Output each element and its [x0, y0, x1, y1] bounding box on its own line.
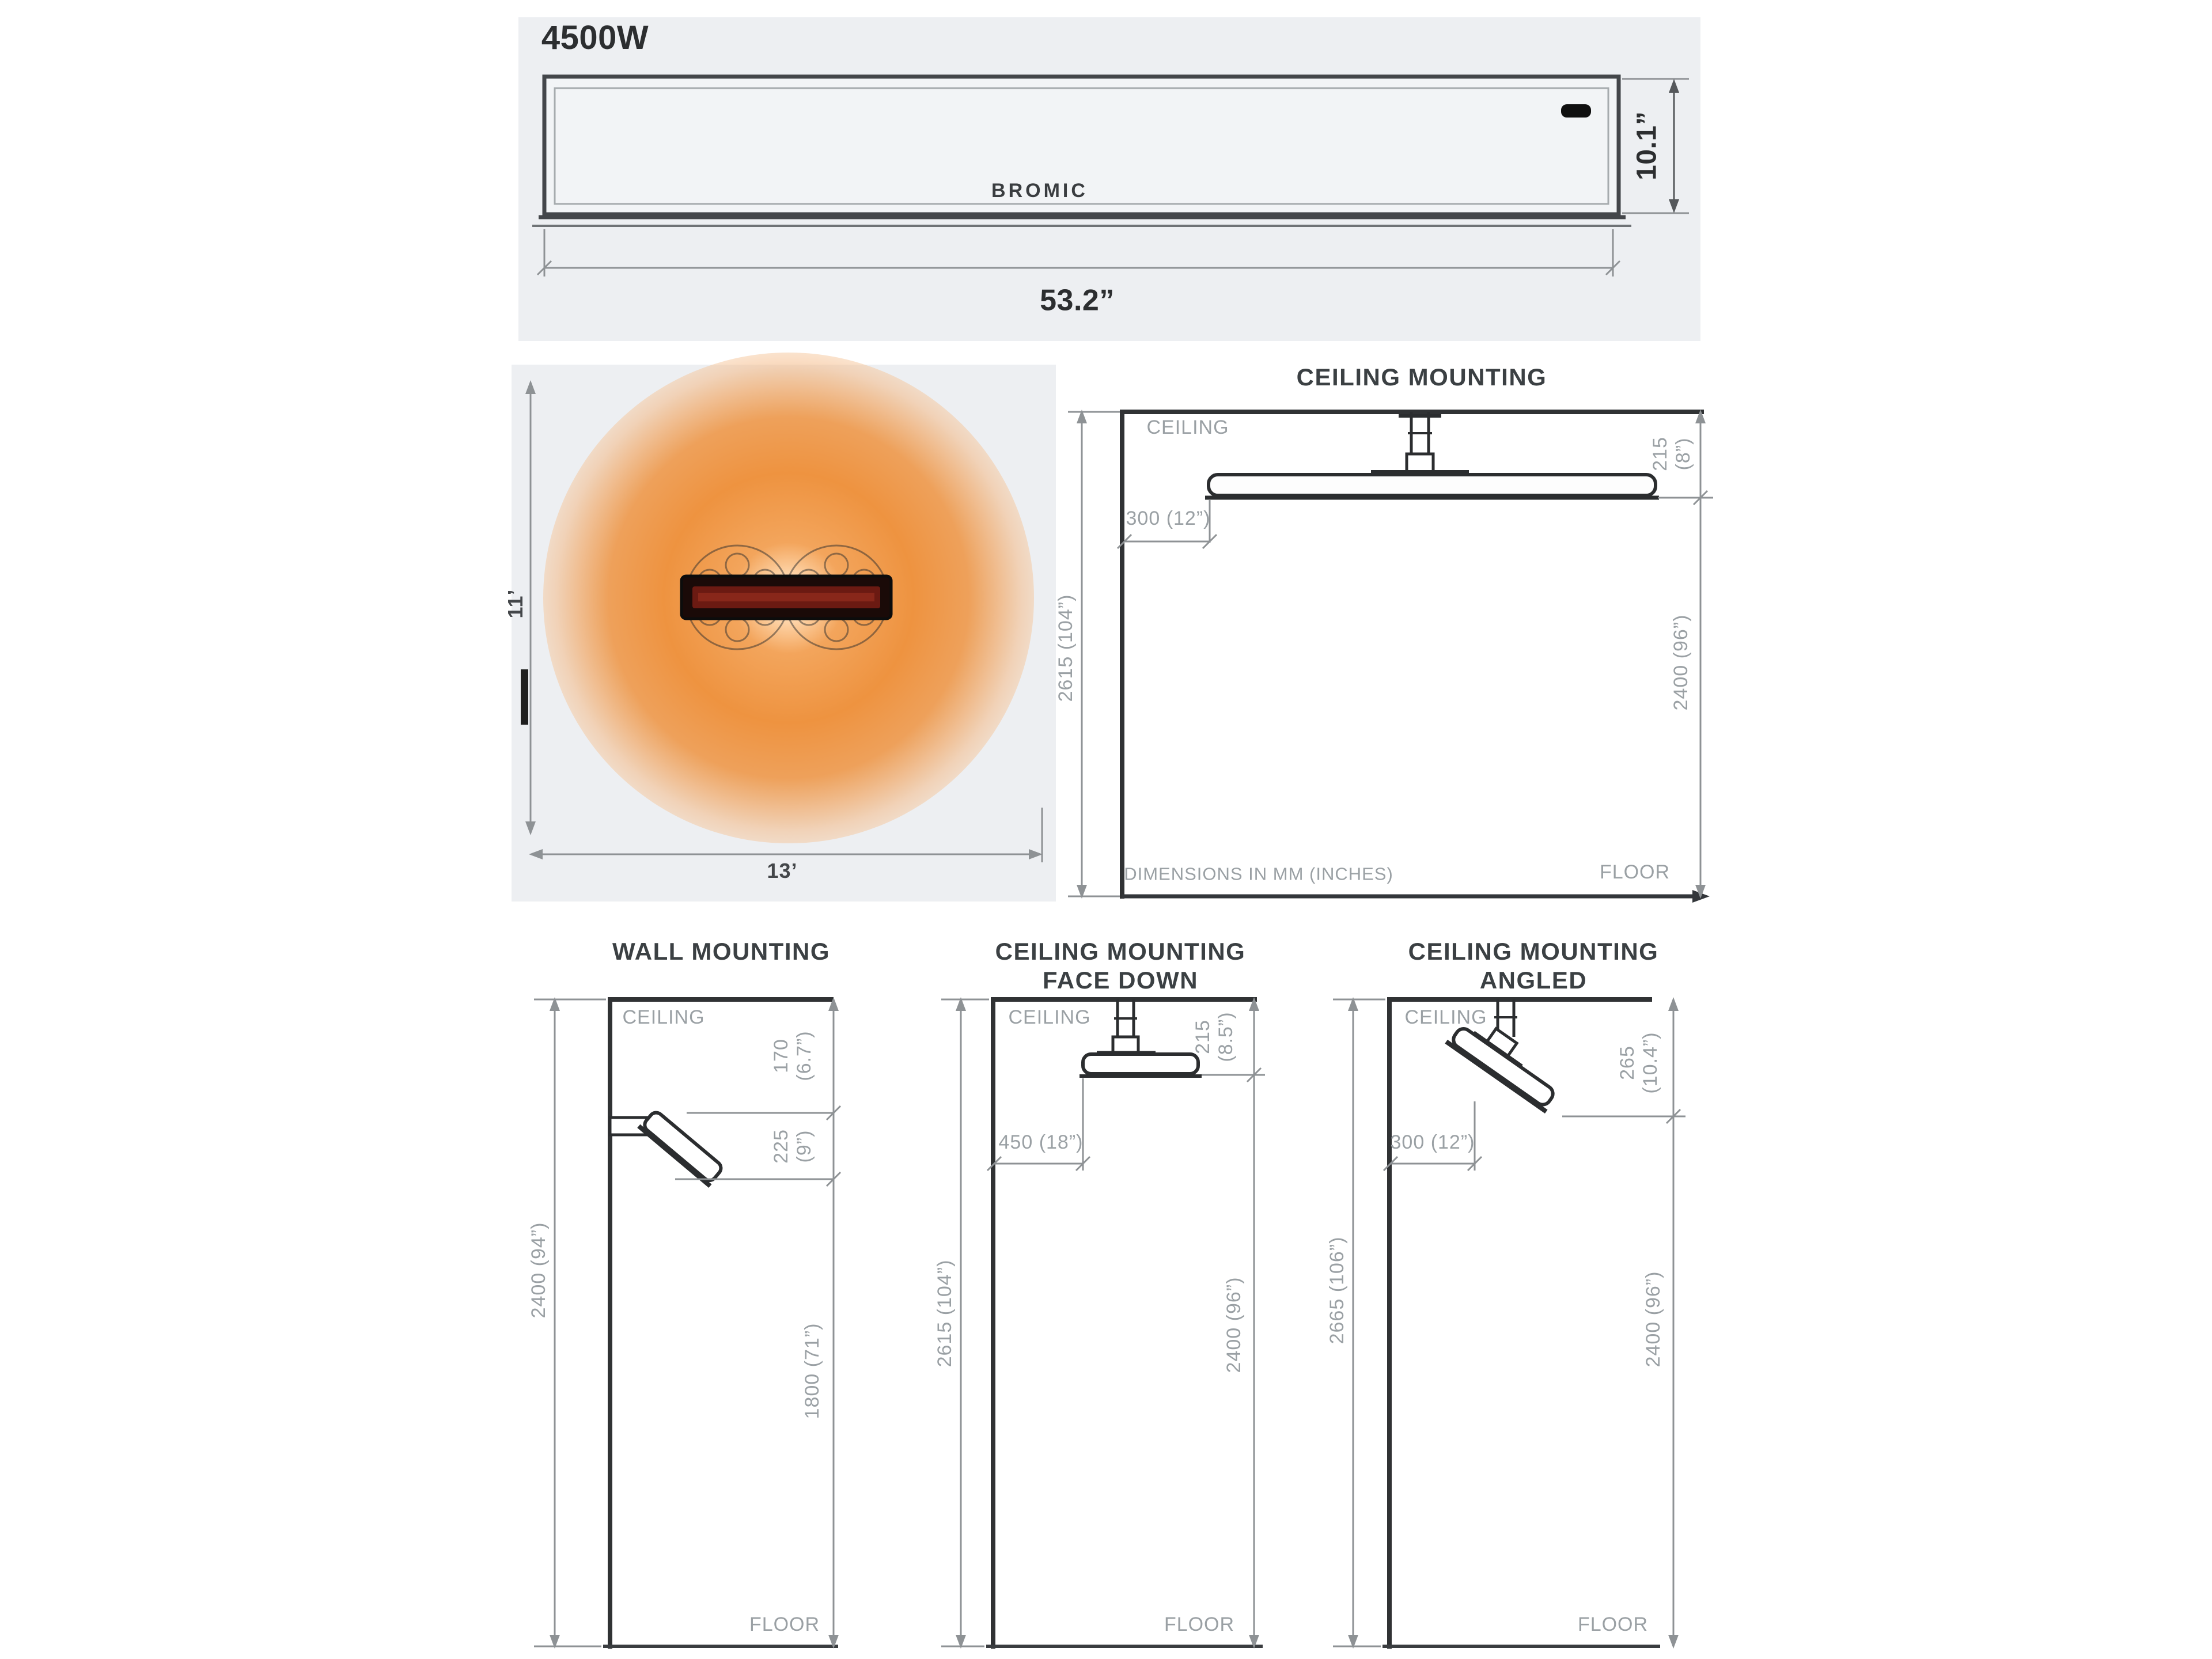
wm-top-offset-mm: 170 [770, 1031, 793, 1081]
wm-drop-dim-label: 225 (9”) [770, 1129, 816, 1164]
ca-clearance-dim-label: 2400 (96”) [1642, 1271, 1665, 1368]
front-view-drawing [532, 77, 1689, 276]
ca-floor-label: FLOOR [1578, 1613, 1648, 1636]
fd-drop-dim-label: 215 (8.5”) [1191, 1012, 1237, 1062]
front-width-dim-label: 53.2” [1040, 283, 1115, 318]
heat-depth-dim-label: 11’ [503, 589, 528, 618]
ceiling-mounting-title: CEILING MOUNTING [1297, 363, 1547, 392]
face-down-title-line2: FACE DOWN [1043, 966, 1198, 995]
wattage-label: 4500W [541, 18, 649, 58]
heater-side-view [1209, 475, 1656, 495]
heater-face-down [1083, 1054, 1198, 1074]
fd-offset-dim-label: 450 (18”) [999, 1131, 1084, 1154]
cm-clearance-dim-label: 2400 (96”) [1669, 615, 1692, 711]
heat-area-drawing [521, 380, 1043, 862]
fd-ceiling-label: CEILING [1008, 1006, 1090, 1029]
wm-ceiling-label: CEILING [622, 1006, 704, 1029]
wall-position-marker [521, 669, 528, 725]
heat-width-dim-label: 13’ [767, 859, 797, 883]
ceiling-mounting-drawing [1068, 410, 1713, 903]
heater-wall-mounted [642, 1110, 724, 1183]
spec-sheet: 4500W BROMIC 10.1” 53.2” 11’ 13’ CEILING… [0, 0, 2212, 1659]
wall-mounting-title: WALL MOUNTING [612, 937, 830, 966]
cm-total-dim-label: 2615 (104”) [1054, 594, 1077, 702]
ca-total-dim-label: 2665 (106”) [1325, 1237, 1349, 1344]
indicator-light [1561, 104, 1591, 118]
diagram-linework [0, 0, 2212, 1659]
wm-drop-dim-in: (9”) [793, 1129, 816, 1164]
ca-drop-dim-in: (10.4”) [1639, 1032, 1662, 1093]
wm-drop-dim-mm: 225 [770, 1129, 793, 1164]
fd-drop-dim-in: (8.5”) [1214, 1012, 1237, 1062]
cm-drop-dim-in: (8”) [1672, 437, 1695, 471]
cm-offset-dim-label: 300 (12”) [1126, 507, 1211, 530]
ca-offset-dim-label: 300 (12”) [1391, 1131, 1475, 1154]
ca-drop-dim-mm: 265 [1616, 1032, 1639, 1093]
fd-total-dim-label: 2615 (104”) [933, 1260, 956, 1368]
ca-drop-dim-label: 265 (10.4”) [1616, 1032, 1662, 1093]
ca-ceiling-label: CEILING [1404, 1006, 1487, 1029]
fd-clearance-dim-label: 2400 (96”) [1222, 1277, 1245, 1373]
ceiling-angled-drawing [1333, 997, 1685, 1649]
wm-total-dim-label: 2400 (94”) [527, 1222, 550, 1319]
brand-logo: BROMIC [991, 179, 1088, 202]
cm-floor-label: FLOOR [1600, 861, 1670, 884]
wm-clearance-dim-label: 1800 (71”) [801, 1323, 824, 1419]
wm-floor-label: FLOOR [749, 1613, 820, 1636]
face-down-title-line1: CEILING MOUNTING [995, 937, 1246, 966]
angled-title-line2: ANGLED [1480, 966, 1587, 995]
ceiling-face-down-drawing [941, 997, 1265, 1649]
cm-drop-dim-label: 215 (8”) [1649, 437, 1695, 471]
fd-drop-dim-mm: 215 [1191, 1012, 1214, 1062]
wall-mounting-drawing [534, 997, 840, 1649]
wm-top-offset-label: 170 (6.7”) [770, 1031, 816, 1081]
cm-dimensions-note: DIMENSIONS IN MM (INCHES) [1124, 864, 1393, 885]
front-height-dim-label: 10.1” [1631, 111, 1664, 180]
angled-title-line1: CEILING MOUNTING [1408, 937, 1659, 966]
cm-drop-dim-mm: 215 [1649, 437, 1672, 471]
wm-top-offset-in: (6.7”) [793, 1031, 816, 1081]
cm-ceiling-label: CEILING [1146, 416, 1229, 439]
fd-floor-label: FLOOR [1164, 1613, 1234, 1636]
